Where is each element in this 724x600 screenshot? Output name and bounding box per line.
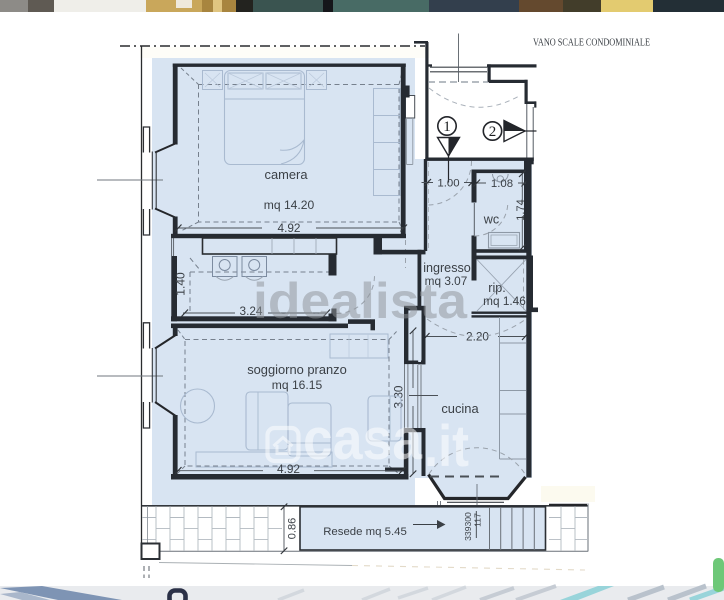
svg-text:wc: wc xyxy=(483,213,499,227)
svg-text:1.00: 1.00 xyxy=(437,177,459,189)
svg-text:mq 1.46: mq 1.46 xyxy=(483,294,526,308)
svg-text:4.92: 4.92 xyxy=(278,221,301,235)
svg-text:117: 117 xyxy=(473,513,483,527)
svg-text:1.74: 1.74 xyxy=(515,199,527,220)
svg-text:0.86: 0.86 xyxy=(287,518,299,539)
svg-text:idealista: idealista xyxy=(253,273,468,329)
svg-text:casa: casa xyxy=(303,407,423,472)
svg-text:339300: 339300 xyxy=(463,512,473,541)
svg-text:camera: camera xyxy=(265,167,309,182)
svg-text:Resede mq 5.45: Resede mq 5.45 xyxy=(323,526,407,538)
svg-text:mq 14.20: mq 14.20 xyxy=(264,198,315,212)
svg-text:1: 1 xyxy=(443,119,451,135)
svg-text:mq 16.15: mq 16.15 xyxy=(272,378,323,392)
svg-text:3.30: 3.30 xyxy=(392,385,406,408)
svg-text:4.92: 4.92 xyxy=(277,462,300,476)
svg-text:2: 2 xyxy=(489,124,497,140)
svg-text:VANO SCALE CONDOMINIALE: VANO SCALE CONDOMINIALE xyxy=(533,38,650,49)
svg-text:1.08: 1.08 xyxy=(491,178,513,190)
svg-text:1.40: 1.40 xyxy=(174,272,188,296)
svg-text:soggiorno pranzo: soggiorno pranzo xyxy=(247,362,347,377)
svg-text:.it: .it xyxy=(424,414,469,479)
